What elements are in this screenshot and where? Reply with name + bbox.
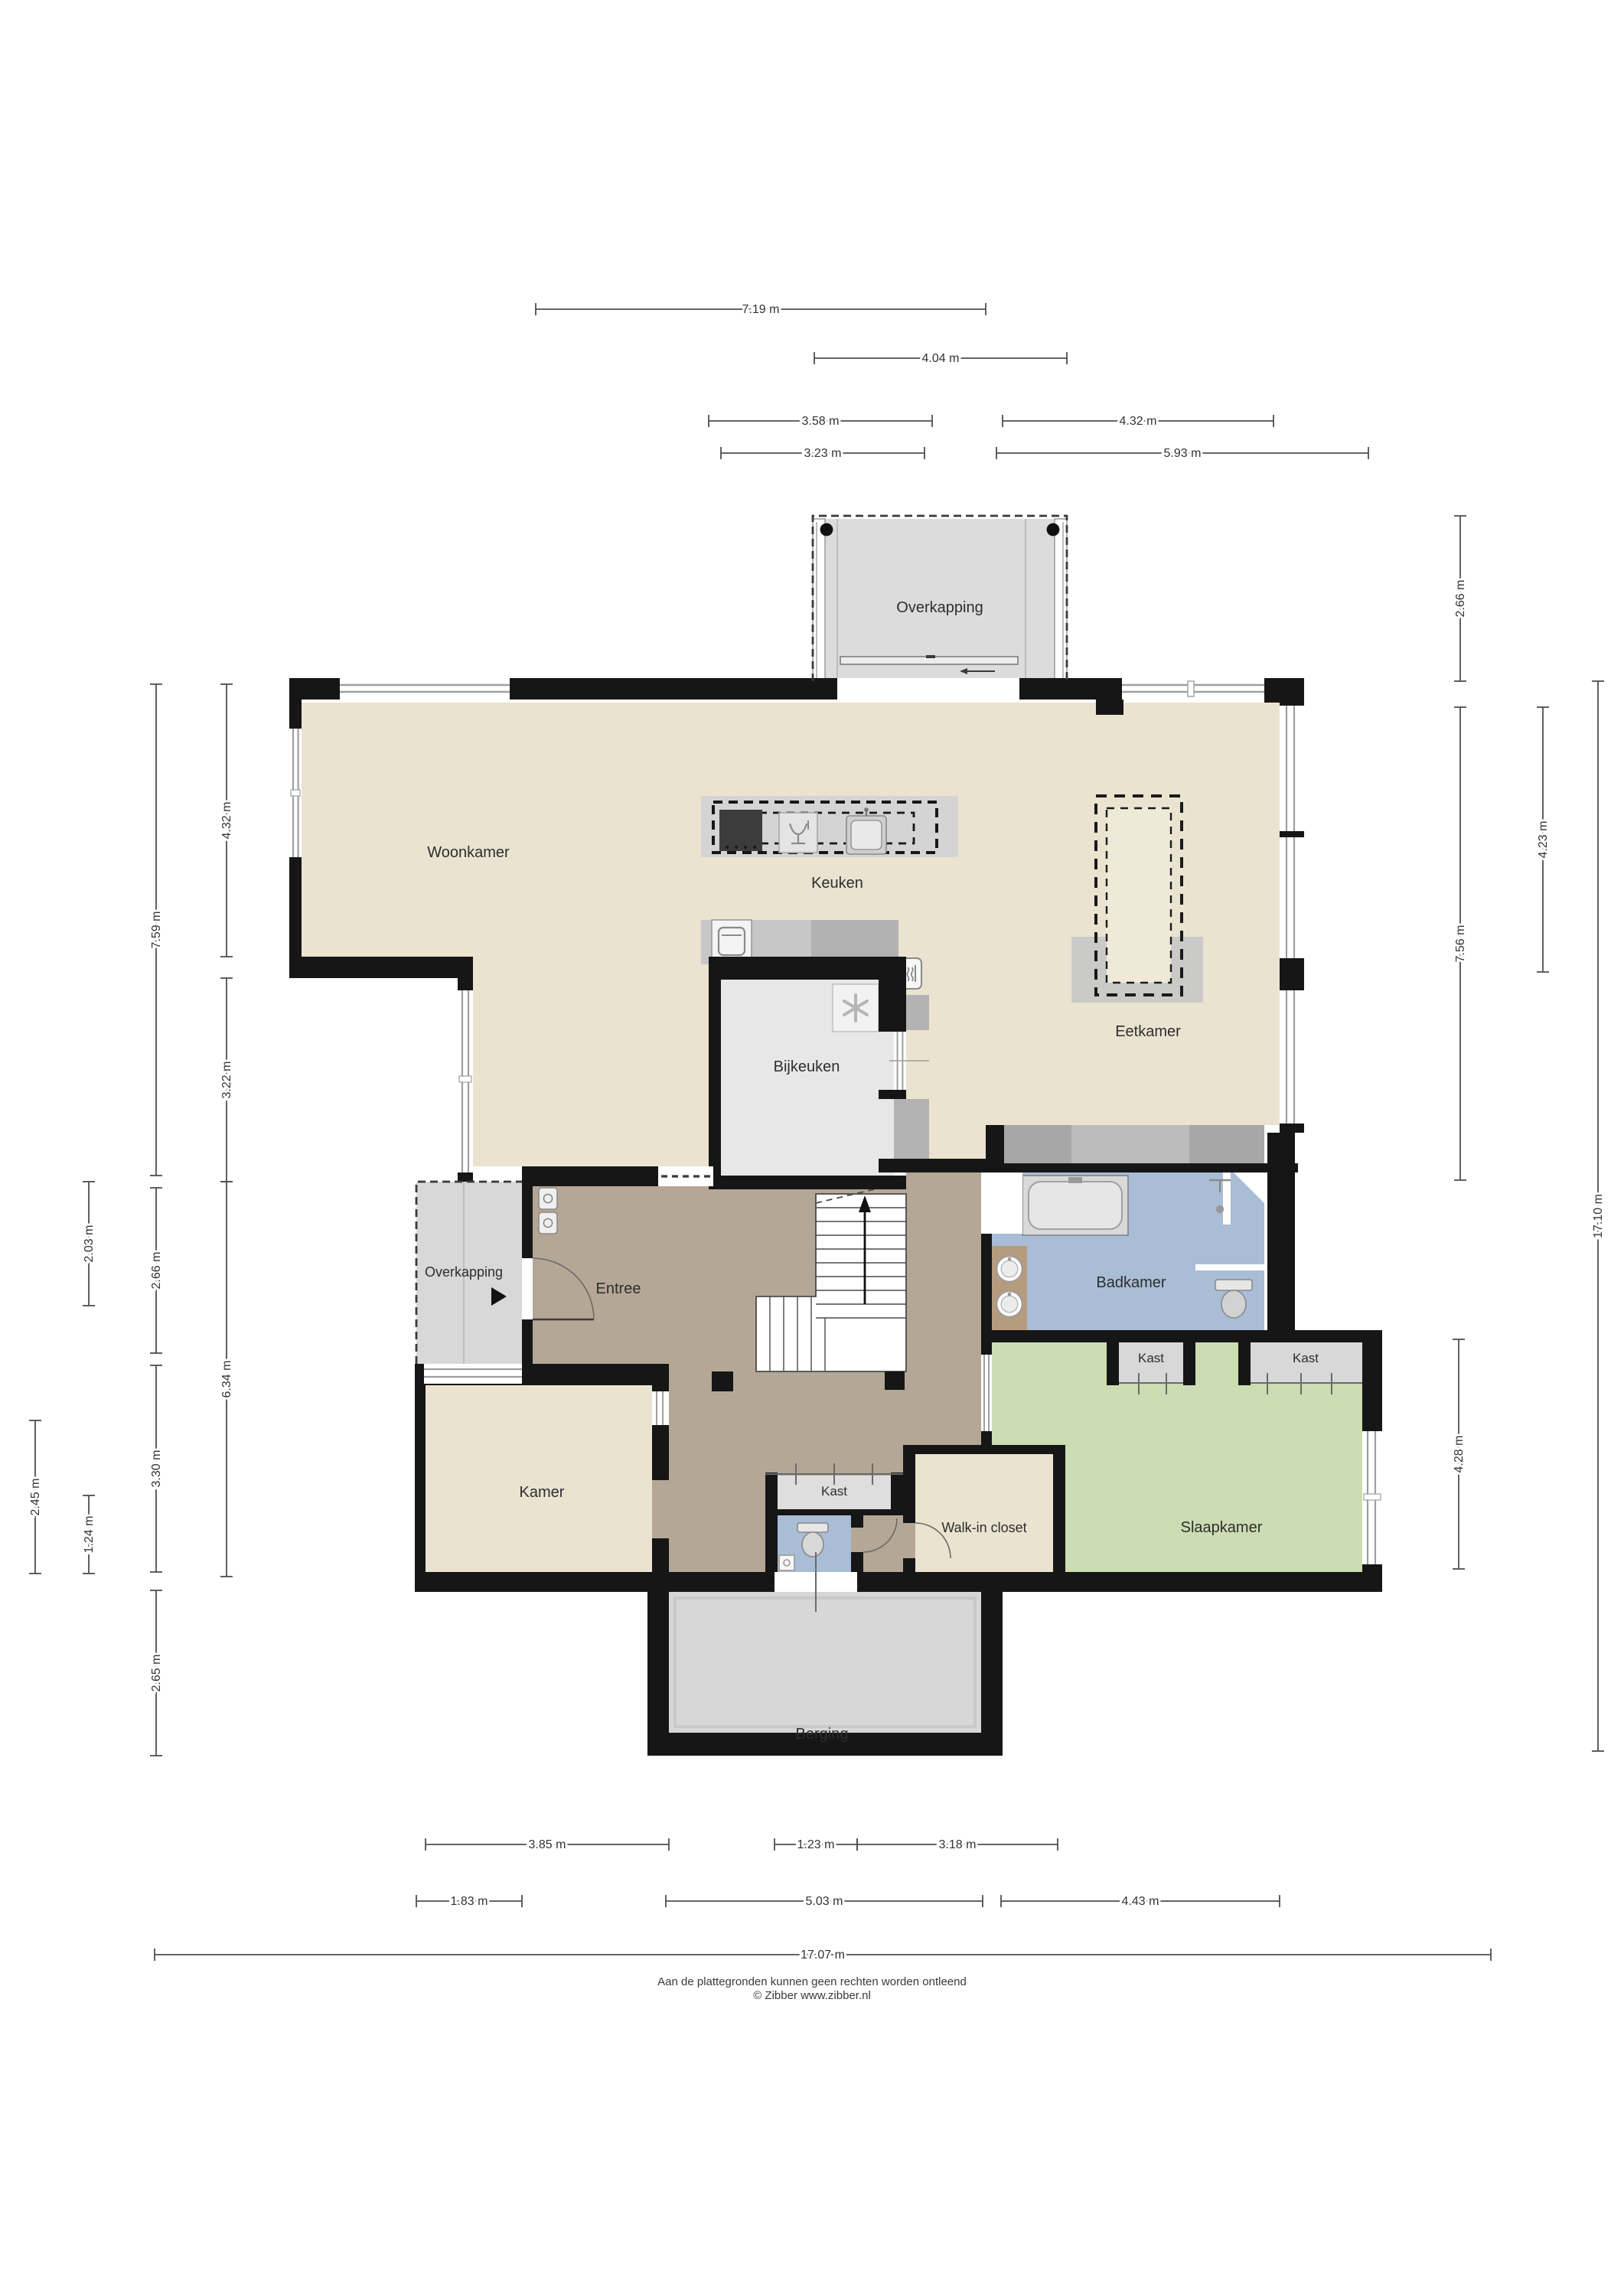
wall-closet2-w (1238, 1342, 1251, 1385)
canopy-railing-left (813, 519, 825, 681)
window-kamer (652, 1391, 669, 1425)
washbasin-icon (992, 1246, 1027, 1330)
cooktop-icon (719, 810, 762, 851)
cooktop-knob (744, 846, 747, 849)
room-floor (426, 1385, 652, 1572)
page: OverkappingWoonkamerKeukenEetkamerBijkeu… (0, 0, 1624, 2296)
dimension-label: 5.03 m (806, 1895, 843, 1908)
dimension: 4.28 m (1453, 1339, 1466, 1569)
oven-icon (712, 920, 752, 963)
dimension: 17.10 m (1592, 681, 1605, 1751)
dimension-label: 5.93 m (1164, 447, 1202, 460)
bathtub-icon (1022, 1176, 1128, 1235)
dimension: 3.58 m (709, 415, 932, 428)
wall-south-mid (669, 1572, 1065, 1592)
window-column (458, 990, 473, 1172)
dimension: 1.83 m (416, 1895, 522, 1908)
canopy-railing-right (1055, 519, 1067, 681)
floorplan-svg: OverkappingWoonkamerKeukenEetkamerBijkeu… (0, 0, 1624, 2296)
wardrobe-block (1071, 1125, 1189, 1163)
floorplan-canvas: OverkappingWoonkamerKeukenEetkamerBijkeu… (0, 0, 1624, 2296)
dimension: 4.23 m (1537, 707, 1550, 972)
dimension: 17.07 m (155, 1949, 1491, 1962)
dimension: 3.23 m (721, 447, 925, 460)
cooktop-knob (753, 846, 756, 849)
dimension: 3.85 m (426, 1838, 669, 1851)
dimension-label: 1.83 m (451, 1895, 488, 1908)
canopy-stub (813, 692, 827, 700)
dimension: 2.03 m (83, 1182, 96, 1306)
wall-ne-corner (1264, 678, 1304, 703)
wall-utility-s (709, 1176, 906, 1189)
wall-bedroom-n-ext (1267, 1330, 1382, 1342)
dimension: 1.24 m (83, 1495, 96, 1574)
dining-table-inner (1107, 808, 1171, 983)
wall-closet-e (891, 1473, 903, 1515)
room-label-eetkamer: Eetkamer (1115, 1023, 1181, 1040)
door-threshold-dashed (658, 1166, 713, 1186)
dimension: 2.65 m (150, 1590, 163, 1756)
wall-utility-e1 (879, 980, 894, 1032)
dishwasher-icon (779, 813, 817, 853)
dimension: 7.59 m (150, 684, 163, 1176)
cooktop-knob (726, 846, 729, 849)
dimension: 2.66 m (150, 1188, 163, 1353)
dimension-label: 4.32 m (1120, 415, 1157, 428)
dimension-label: 2.66 m (1454, 580, 1467, 618)
dimension-label: 7.19 m (742, 303, 780, 316)
dimension: 1.23 m (774, 1838, 857, 1851)
wall-closet1-w (1107, 1342, 1119, 1385)
post (885, 1371, 905, 1390)
dimension-label: 1.24 m (83, 1516, 96, 1554)
room-label-berging: Berging (796, 1726, 849, 1743)
dimension: 2.45 m (29, 1420, 42, 1574)
dimension: 4.32 m (220, 684, 233, 957)
room-label-slaapkamer: Slaapkamer (1181, 1519, 1263, 1536)
wall-utility-e1b (894, 980, 906, 1032)
wall-walkin-w1 (903, 1445, 915, 1523)
footer-disclaimer: Aan de plattegronden kunnen geen rechten… (0, 1975, 1624, 2002)
wall-kamer-s (415, 1572, 669, 1592)
dimension: 5.03 m (666, 1895, 983, 1908)
dimension-label: 2.45 m (29, 1479, 42, 1516)
dimension-label: 3.58 m (802, 415, 840, 428)
dimension: 4.04 m (814, 352, 1067, 365)
window-canopy-left (416, 1364, 522, 1384)
dimension-label: 7.59 m (150, 912, 163, 949)
dimension-label: 6.34 m (220, 1361, 233, 1398)
room-label-overkapping-top: Overkapping (896, 599, 983, 616)
dimension: 7.56 m (1454, 707, 1467, 1180)
window-west (289, 729, 302, 857)
dimension-label: 2.66 m (150, 1252, 163, 1290)
wall-wc-e-bot (851, 1552, 863, 1572)
wall-closet-s (778, 1509, 891, 1515)
canopy-post-dot (820, 523, 833, 536)
window-north-right (1122, 678, 1264, 700)
wall-entree-n (522, 1166, 661, 1186)
wall-kamer-e2 (652, 1538, 669, 1572)
room-label-badkamer: Badkamer (1096, 1274, 1166, 1291)
room-label-overkapping-left: Overkapping (425, 1264, 503, 1280)
canopy-post-dot (1047, 523, 1060, 536)
dimension-label: 2.65 m (150, 1655, 163, 1692)
dimension-label: 3.18 m (939, 1838, 977, 1851)
room-label-kast-slaapkamer-2: Kast (1293, 1351, 1319, 1365)
fridge-icon (833, 984, 879, 1032)
sliding-door-icon (837, 657, 1019, 700)
wall-bedroom-s (1053, 1572, 1382, 1592)
wall-walkin-w2 (903, 1558, 915, 1572)
dimension: 2.66 m (1454, 516, 1467, 681)
dimension: 7.19 m (536, 303, 986, 316)
room-label-keuken: Keuken (811, 875, 863, 892)
wall-storage-e (981, 1592, 1003, 1756)
window-east-2 (1280, 837, 1304, 958)
dimension: 3.30 m (150, 1365, 163, 1572)
dimension: 4.32 m (1003, 415, 1273, 428)
disclaimer-text: Aan de plattegronden kunnen geen rechten… (0, 1975, 1624, 1988)
dimension-label: 2.03 m (83, 1225, 96, 1263)
wall-walkin-e (1053, 1454, 1065, 1572)
dimension: 3.18 m (857, 1838, 1058, 1851)
living-floor-left-strip (471, 1125, 709, 1166)
dimension-label: 3.22 m (220, 1062, 233, 1099)
wall-storage-w (647, 1572, 669, 1756)
wall-walkin-n (903, 1445, 1065, 1454)
bathroom-door-opening (992, 1172, 1022, 1234)
utility-counter-block (906, 995, 929, 1030)
room-label-walk-in-closet: Walk-in closet (941, 1520, 1026, 1535)
dimension-label: 4.23 m (1537, 821, 1550, 859)
wall-cap (458, 1172, 473, 1182)
room-label-woonkamer: Woonkamer (427, 844, 510, 861)
post (712, 1371, 733, 1391)
dimension-label: 3.23 m (804, 447, 842, 460)
dimension-label: 17.07 m (801, 1949, 845, 1962)
dimension: 3.22 m (220, 978, 233, 1182)
walkin-floor (915, 1454, 1053, 1572)
dimension-label: 17.10 m (1592, 1194, 1605, 1238)
dimension: 6.34 m (220, 1182, 233, 1577)
window-bedroom-w (981, 1355, 992, 1431)
window-north-left (340, 678, 510, 700)
copyright-text: © Zibber www.zibber.nl (0, 1988, 1624, 2002)
room-label-kamer: Kamer (520, 1484, 565, 1501)
room-label-entree: Entree (596, 1280, 641, 1297)
room-label-bijkeuken: Bijkeuken (774, 1058, 840, 1075)
wall-closet1-e (1183, 1342, 1195, 1385)
wall-utility-w (709, 957, 721, 1186)
room-label-kast-slaapkamer-1: Kast (1138, 1351, 1164, 1365)
wall-jog (289, 957, 473, 978)
wall-wc-e-top (851, 1515, 863, 1528)
canopy-stub (1053, 692, 1067, 700)
room-label-kast-hal: Kast (821, 1484, 847, 1499)
wall-notch (1096, 700, 1123, 715)
dimension-label: 4.32 m (220, 802, 233, 840)
dimension-label: 3.30 m (150, 1450, 163, 1488)
dimension-label: 4.28 m (1453, 1436, 1466, 1473)
dimension-label: 4.43 m (1122, 1895, 1159, 1908)
dimension-label: 7.56 m (1454, 925, 1467, 963)
window-east-1 (1280, 706, 1304, 831)
wall-bath-n (981, 1163, 1298, 1172)
wall-cap (458, 978, 473, 990)
dimension-label: 3.85 m (529, 1838, 566, 1851)
dimension-label: 1.23 m (797, 1838, 835, 1851)
window-east-3 (1280, 990, 1304, 1124)
window-bedroom-e (1362, 1431, 1382, 1564)
wall-bath-w (981, 1234, 992, 1342)
dimension: 5.93 m (996, 447, 1368, 460)
dimension: 4.43 m (1001, 1895, 1280, 1908)
utility-counter-block (894, 1099, 929, 1159)
wall-utility-n (709, 957, 906, 980)
storage-floor (669, 1592, 981, 1733)
cooktop-knob (735, 846, 738, 849)
dimension-label: 4.04 m (922, 352, 960, 365)
wardrobe-block (1189, 1125, 1264, 1163)
wardrobe-block (1000, 1125, 1071, 1163)
wall-wc-w (765, 1473, 778, 1572)
wall-utility-e2 (879, 1090, 906, 1099)
wall-kamer-w (415, 1364, 426, 1592)
